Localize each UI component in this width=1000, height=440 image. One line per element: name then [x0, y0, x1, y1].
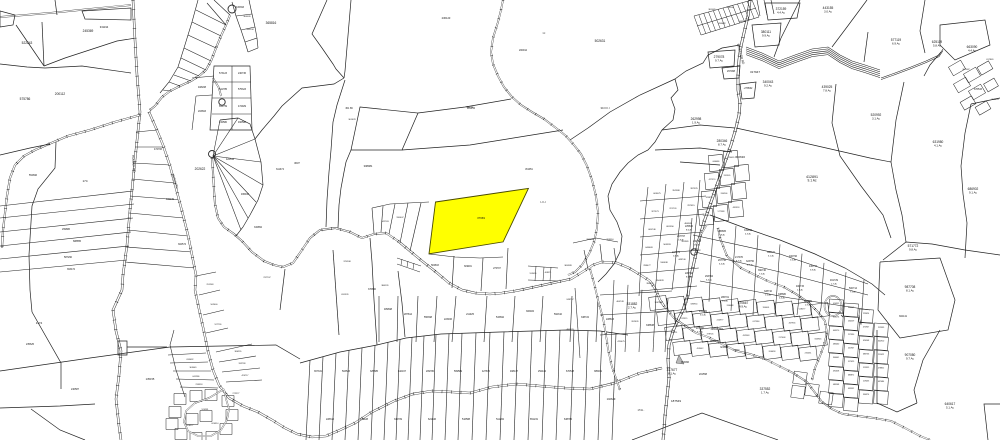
- svg-text:397325: 397325: [690, 188, 698, 190]
- svg-text:262631: 262631: [631, 321, 639, 323]
- svg-text:365389: 365389: [564, 265, 572, 267]
- svg-text:515955: 515955: [863, 367, 869, 369]
- svg-text:251907: 251907: [848, 348, 854, 350]
- svg-text:190407: 190407: [396, 217, 404, 219]
- svg-text:500714: 500714: [849, 287, 858, 290]
- svg-text:676533: 676533: [974, 88, 983, 91]
- svg-text:221701: 221701: [669, 208, 677, 210]
- svg-text:4.9 Ac: 4.9 Ac: [739, 305, 748, 309]
- svg-text:219433: 219433: [863, 381, 869, 383]
- svg-text:308613: 308613: [710, 341, 718, 343]
- svg-text:260206: 260206: [721, 193, 729, 195]
- svg-text:I-I I-I: I-I I-I: [540, 200, 546, 204]
- svg-text:483460: 483460: [833, 344, 839, 346]
- svg-text:541785: 541785: [219, 88, 228, 91]
- svg-text:4.4 Ac: 4.4 Ac: [777, 11, 786, 15]
- svg-text:394001: 394001: [763, 307, 771, 309]
- svg-text:4.1 Ac: 4.1 Ac: [934, 144, 943, 148]
- svg-text:212999: 212999: [878, 327, 884, 329]
- svg-text:240587: 240587: [71, 388, 80, 391]
- svg-text:338722: 338722: [581, 316, 590, 319]
- svg-text:553026: 553026: [530, 273, 538, 275]
- svg-text:470475: 470475: [617, 341, 625, 343]
- svg-text:476428: 476428: [360, 418, 369, 421]
- svg-text:7.8 Ac: 7.8 Ac: [719, 234, 726, 237]
- svg-text:631331: 631331: [341, 294, 349, 296]
- svg-text:427570: 427570: [709, 179, 717, 181]
- svg-text:5.1 Ac: 5.1 Ac: [946, 406, 955, 410]
- svg-text:688855: 688855: [73, 240, 82, 243]
- svg-text:1741··: 1741··: [638, 409, 645, 412]
- svg-text:427870: 427870: [482, 370, 491, 373]
- svg-text:236123: 236123: [442, 16, 451, 20]
- svg-text:617584: 617584: [753, 321, 761, 323]
- svg-text:538364: 538364: [738, 21, 746, 23]
- svg-text:493992: 493992: [848, 388, 854, 390]
- svg-text:302910: 302910: [878, 341, 884, 343]
- svg-text:502631: 502631: [595, 39, 606, 43]
- svg-text:9.7 Ac: 9.7 Ac: [715, 59, 724, 63]
- svg-text:299563: 299563: [733, 349, 741, 351]
- svg-text:325685: 325685: [370, 370, 379, 373]
- svg-text:232790: 232790: [693, 240, 702, 243]
- svg-text:617861: 617861: [986, 59, 994, 61]
- svg-text:202622: 202622: [195, 167, 206, 171]
- svg-text:212315: 212315: [681, 318, 689, 320]
- svg-text:8.4 Ac: 8.4 Ac: [736, 260, 743, 263]
- svg-text:331194: 331194: [100, 25, 109, 29]
- svg-text:472706: 472706: [154, 148, 163, 151]
- svg-text:575786: 575786: [20, 97, 31, 101]
- svg-text:663946: 663946: [815, 338, 823, 340]
- svg-text:406749: 406749: [616, 301, 624, 303]
- svg-text:200912: 200912: [519, 49, 528, 52]
- svg-text:5.8 Ac: 5.8 Ac: [673, 255, 680, 258]
- svg-text:217771: 217771: [672, 251, 681, 254]
- svg-text:554696: 554696: [29, 174, 38, 177]
- svg-text:408208: 408208: [198, 86, 207, 89]
- svg-text:9.8 Ac: 9.8 Ac: [909, 248, 918, 252]
- svg-text:304026: 304026: [243, 16, 251, 18]
- svg-text:453042: 453042: [697, 348, 705, 350]
- svg-text:365816: 365816: [266, 21, 277, 25]
- svg-text:610167: 610167: [398, 370, 407, 373]
- svg-text:187549: 187549: [671, 399, 681, 403]
- svg-text:332738: 332738: [239, 363, 247, 365]
- svg-text:577588: 577588: [718, 211, 726, 213]
- svg-text:6.9 Ac: 6.9 Ac: [892, 42, 901, 46]
- svg-text:252444: 252444: [538, 370, 547, 373]
- svg-text:406949: 406949: [166, 198, 175, 201]
- svg-text:1.9 Ac: 1.9 Ac: [692, 121, 701, 125]
- svg-text:683736: 683736: [863, 354, 869, 356]
- svg-text:5.9 Ac: 5.9 Ac: [694, 244, 701, 247]
- svg-text:430747: 430747: [809, 265, 818, 268]
- svg-text:228313: 228313: [326, 418, 335, 421]
- svg-text:-278532: -278532: [744, 87, 753, 90]
- svg-text:9.2 Ac: 9.2 Ac: [764, 84, 773, 88]
- svg-text:307087: 307087: [962, 69, 970, 71]
- svg-text:8.7 Ac: 8.7 Ac: [718, 143, 727, 147]
- svg-text:240736: 240736: [238, 72, 247, 75]
- svg-text:472929: 472929: [238, 105, 247, 108]
- svg-text:665746: 665746: [648, 229, 656, 231]
- svg-text:381081: 381081: [708, 9, 716, 11]
- svg-text:654759: 654759: [219, 105, 228, 108]
- svg-text:495944: 495944: [241, 193, 250, 196]
- svg-text:309049: 309049: [190, 367, 198, 369]
- svg-text:475907: 475907: [863, 327, 869, 329]
- svg-text:8.4 Ac: 8.4 Ac: [747, 264, 754, 267]
- svg-text:200112: 200112: [55, 92, 66, 96]
- svg-text:414355: 414355: [833, 303, 839, 305]
- svg-text:635432: 635432: [187, 359, 195, 361]
- svg-text:298477: 298477: [643, 265, 651, 267]
- svg-text:301 86: 301 86: [345, 107, 353, 110]
- svg-text:641286: 641286: [193, 376, 201, 378]
- svg-text:301629: 301629: [348, 119, 356, 121]
- svg-text:316303: 316303: [703, 215, 711, 217]
- svg-text:503526: 503526: [342, 370, 351, 373]
- svg-text:248757: 248757: [566, 299, 574, 301]
- svg-text:313176: 313176: [833, 317, 839, 319]
- svg-text:478852: 478852: [878, 368, 884, 370]
- svg-text:624314: 624314: [212, 423, 220, 425]
- svg-text:1.6 Ac: 1.6 Ac: [765, 294, 772, 297]
- svg-text:5.6 Ac: 5.6 Ac: [790, 259, 797, 262]
- svg-text:206658: 206658: [769, 351, 777, 353]
- svg-text:492658: 492658: [833, 371, 839, 373]
- svg-text:239953: 239953: [196, 384, 204, 386]
- svg-text:1174: 1174: [36, 321, 43, 325]
- svg-text:609075: 609075: [653, 193, 661, 195]
- svg-text:9.7 Ac: 9.7 Ac: [906, 357, 915, 361]
- svg-text:228833: 228833: [606, 318, 615, 321]
- svg-text:323750: 323750: [746, 260, 755, 263]
- svg-text:637084: 637084: [878, 381, 884, 383]
- svg-text:302574: 302574: [178, 243, 187, 246]
- svg-text:533692: 533692: [496, 316, 505, 319]
- svg-text:524039: 524039: [728, 157, 736, 159]
- svg-text:584833: 584833: [431, 265, 439, 267]
- svg-text:681356: 681356: [666, 226, 674, 228]
- svg-text:481254: 481254: [467, 107, 476, 110]
- svg-text:666486: 666486: [713, 161, 721, 163]
- svg-text:102629: 102629: [607, 397, 616, 401]
- svg-text:217408: 217408: [779, 337, 787, 339]
- svg-text:642763: 642763: [381, 221, 389, 223]
- svg-text:293764: 293764: [705, 275, 714, 278]
- svg-text:296842: 296842: [718, 23, 726, 25]
- svg-text:211422: 211422: [878, 354, 884, 356]
- svg-text:373264: 373264: [726, 7, 734, 9]
- svg-text:286805: 286805: [718, 230, 727, 233]
- svg-text:235625: 235625: [26, 343, 35, 346]
- svg-text:223624: 223624: [863, 313, 869, 315]
- svg-text:587290: 587290: [64, 256, 73, 259]
- svg-text:368771: 368771: [767, 251, 776, 254]
- svg-text:448740: 448740: [678, 259, 686, 261]
- svg-text:562400: 562400: [211, 304, 219, 306]
- svg-text:I-I: I-I: [543, 31, 546, 35]
- svg-text:291248: 291248: [207, 284, 215, 286]
- svg-text:234559: 234559: [848, 321, 854, 323]
- svg-text:394425: 394425: [646, 283, 654, 285]
- svg-text:638782: 638782: [564, 418, 573, 421]
- svg-text:260158: 260158: [246, 29, 254, 31]
- svg-text:2.7 Ac: 2.7 Ac: [628, 306, 637, 310]
- svg-text:9.1 Ac: 9.1 Ac: [808, 179, 817, 183]
- svg-text:308981: 308981: [364, 164, 373, 168]
- svg-text:300630: 300630: [735, 155, 745, 159]
- svg-text:378726: 378726: [707, 334, 715, 336]
- svg-text:511282: 511282: [496, 418, 504, 421]
- svg-text:621846: 621846: [428, 418, 437, 421]
- svg-text:650828: 650828: [656, 280, 664, 282]
- svg-text:522243: 522243: [22, 41, 33, 45]
- svg-text:376600: 376600: [368, 288, 377, 291]
- svg-text:237707: 237707: [263, 277, 271, 279]
- svg-text:375208: 375208: [343, 261, 351, 263]
- svg-text:569589: 569589: [454, 370, 463, 373]
- svg-text:386295: 386295: [235, 351, 243, 353]
- svg-text:8.6 Ac: 8.6 Ac: [686, 229, 693, 232]
- svg-text:517629: 517629: [848, 361, 854, 363]
- svg-text:223466: 223466: [444, 318, 453, 321]
- svg-text:224977: 224977: [717, 319, 725, 321]
- svg-text:8.1 Ac: 8.1 Ac: [668, 372, 677, 376]
- svg-text:422514: 422514: [226, 158, 235, 161]
- svg-text:378277: 378277: [187, 425, 195, 427]
- svg-text:217990: 217990: [848, 334, 854, 336]
- svg-text:299886: 299886: [62, 228, 71, 231]
- svg-text:328710: 328710: [764, 290, 773, 293]
- svg-text:461729: 461729: [830, 279, 839, 282]
- svg-text:620508: 620508: [863, 340, 869, 342]
- svg-text:390740: 390740: [758, 269, 767, 272]
- svg-text:6.4 Ac: 6.4 Ac: [706, 279, 713, 282]
- svg-text:520281: 520281: [202, 409, 210, 411]
- svg-text:266088: 266088: [727, 305, 735, 307]
- svg-text:3.8 Ac: 3.8 Ac: [810, 269, 817, 272]
- svg-text:468137: 468137: [510, 370, 519, 373]
- svg-text:203829: 203829: [991, 99, 999, 101]
- svg-text:272277: 272277: [233, 393, 241, 395]
- svg-text:481318: 481318: [733, 207, 741, 209]
- svg-text:4.4 Ac: 4.4 Ac: [968, 49, 977, 53]
- svg-text:209780: 209780: [426, 370, 435, 373]
- svg-text:2.1 Ac: 2.1 Ac: [797, 289, 804, 292]
- svg-text:489698: 489698: [384, 308, 393, 311]
- svg-text:8.1 Ac: 8.1 Ac: [906, 289, 915, 293]
- svg-text:651231: 651231: [530, 418, 539, 421]
- svg-text:332852: 332852: [254, 226, 263, 229]
- svg-text:406242: 406242: [848, 307, 854, 309]
- svg-text:492548: 492548: [743, 335, 751, 337]
- svg-text:270707: 270707: [493, 268, 501, 270]
- svg-text:6.4 Ac: 6.4 Ac: [719, 263, 726, 266]
- svg-text:400715: 400715: [796, 285, 805, 288]
- svg-text:573123: 573123: [219, 72, 228, 75]
- svg-text:340709: 340709: [394, 418, 403, 421]
- svg-text:527726: 527726: [215, 324, 223, 326]
- svg-text:424717: 424717: [242, 375, 250, 377]
- svg-text:352388: 352388: [672, 190, 680, 192]
- svg-text:319610: 319610: [744, 229, 753, 232]
- svg-text:6.1 Ac: 6.1 Ac: [768, 255, 775, 258]
- svg-text:670548: 670548: [566, 370, 575, 373]
- svg-text:338838: 338838: [646, 324, 655, 327]
- svg-text:530638: 530638: [660, 262, 668, 264]
- svg-text:4.3 Ac: 4.3 Ac: [745, 233, 752, 236]
- svg-text:489568: 489568: [833, 384, 839, 386]
- svg-text:1.8 Ac: 1.8 Ac: [678, 239, 685, 242]
- svg-text:451951: 451951: [525, 169, 533, 171]
- svg-text:516588: 516588: [462, 418, 471, 421]
- svg-text:338680: 338680: [778, 293, 787, 296]
- svg-text:394974: 394974: [863, 394, 869, 396]
- svg-text:386191: 386191: [381, 285, 389, 287]
- svg-text:268516: 268516: [606, 239, 614, 241]
- svg-text:302141: 302141: [899, 315, 908, 318]
- svg-text:683872: 683872: [848, 375, 854, 377]
- svg-text:7.3 Ac: 7.3 Ac: [759, 273, 766, 276]
- svg-text:528277: 528277: [799, 308, 807, 310]
- svg-text:367331: 367331: [314, 370, 323, 373]
- svg-text:297068: 297068: [727, 70, 736, 73]
- svg-text:232580: 232580: [219, 121, 228, 124]
- svg-text:232061: 232061: [805, 353, 813, 355]
- svg-text:332684: 332684: [586, 239, 594, 241]
- svg-text:220744: 220744: [685, 272, 694, 275]
- svg-text:3637: 3637: [294, 161, 300, 165]
- svg-text:9.9 Ac: 9.9 Ac: [762, 34, 771, 38]
- svg-text:646469: 646469: [645, 247, 653, 249]
- svg-text:556398: 556398: [424, 316, 433, 319]
- svg-text:611374: 611374: [276, 168, 284, 171]
- svg-text:400796: 400796: [789, 255, 798, 258]
- svg-text:236351: 236351: [671, 332, 679, 334]
- svg-text:297615: 297615: [687, 205, 695, 207]
- svg-text:2.4 Ac: 2.4 Ac: [779, 297, 786, 300]
- svg-text:408571: 408571: [545, 272, 553, 274]
- svg-text:211025: 211025: [466, 313, 474, 316]
- svg-text:328640 TBA: 328640 TBA: [711, 328, 724, 331]
- svg-text:486323: 486323: [566, 329, 574, 331]
- svg-text:261905: 261905: [724, 175, 732, 177]
- svg-text:286701: 286701: [721, 296, 730, 299]
- svg-text:7.8 Ac: 7.8 Ac: [823, 89, 832, 93]
- svg-text:592310: 592310: [554, 313, 563, 316]
- svg-text:30·II II·I: 30·II II·I: [601, 106, 610, 110]
- svg-text:467956: 467956: [789, 323, 797, 325]
- svg-text:575323: 575323: [238, 88, 247, 91]
- svg-text:8.6 Ac: 8.6 Ac: [686, 276, 693, 279]
- svg-text:2.7 Ac: 2.7 Ac: [831, 283, 838, 286]
- svg-text:1.7 Ac: 1.7 Ac: [761, 391, 770, 395]
- svg-text:327373: 327373: [651, 211, 659, 213]
- svg-text:563393: 563393: [663, 244, 671, 246]
- svg-text:7.5 Ac: 7.5 Ac: [850, 291, 857, 294]
- svg-text:363472: 363472: [67, 268, 76, 271]
- svg-text:353096: 353096: [681, 361, 690, 364]
- svg-text:3.1 Ac: 3.1 Ac: [872, 117, 881, 121]
- svg-text:267750: 267750: [718, 259, 727, 262]
- svg-text:385461: 385461: [594, 370, 603, 373]
- svg-text:409570: 409570: [833, 330, 839, 332]
- svg-text:135155: 135155: [146, 377, 155, 381]
- svg-text:201558: 201558: [699, 373, 708, 376]
- svg-text:37669: 37669: [477, 216, 485, 220]
- svg-text:203663: 203663: [198, 110, 207, 113]
- svg-text:609481: 609481: [464, 266, 472, 268]
- svg-text:323618: 323618: [720, 347, 728, 349]
- svg-text:9.1 Ac: 9.1 Ac: [969, 191, 978, 195]
- svg-text:306484: 306484: [526, 310, 535, 313]
- svg-text:217797: 217797: [677, 235, 686, 238]
- svg-text:304041: 304041: [833, 357, 839, 359]
- svg-text:325873: 325873: [706, 197, 714, 199]
- svg-text:245369: 245369: [83, 29, 94, 33]
- svg-text:683954: 683954: [691, 304, 699, 306]
- svg-text:3.0 Ac: 3.0 Ac: [824, 10, 833, 14]
- svg-text:287814: 287814: [404, 313, 413, 316]
- svg-text:217970: 217970: [735, 256, 744, 259]
- svg-text:315393: 315393: [236, 6, 245, 9]
- svg-text:174: 174: [82, 179, 87, 183]
- svg-text:3.0 Ac: 3.0 Ac: [700, 314, 707, 317]
- svg-text:317947: 317947: [750, 70, 760, 74]
- svg-text:225840: 225840: [685, 225, 694, 228]
